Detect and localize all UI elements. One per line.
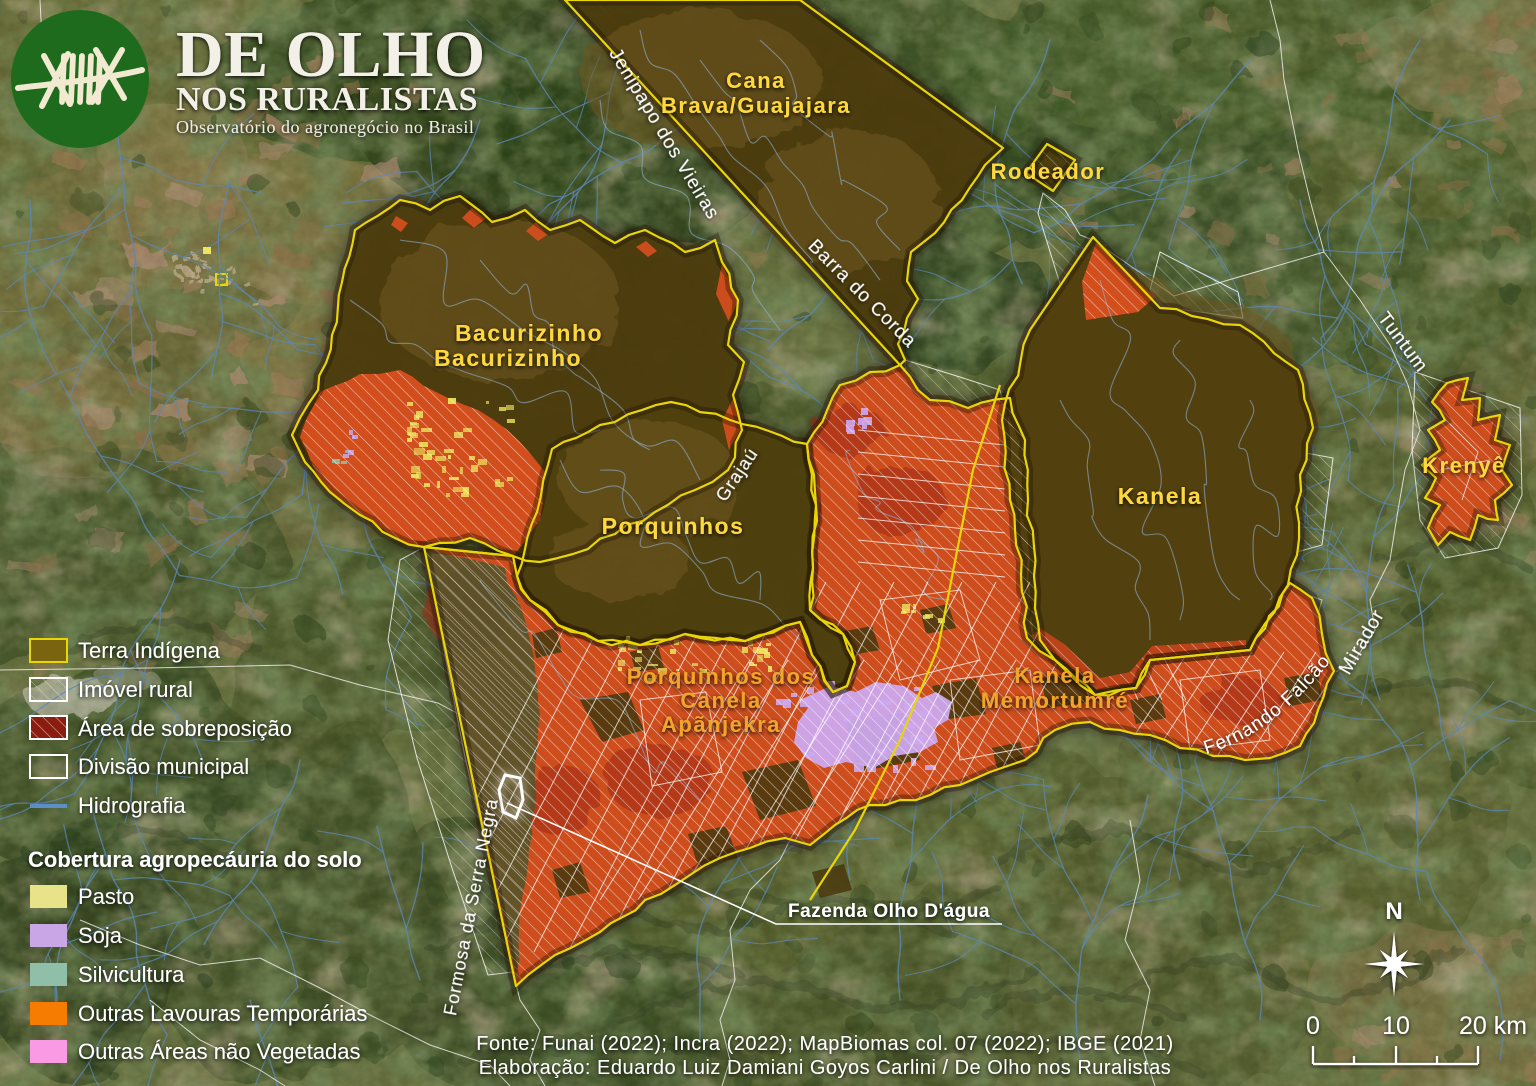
svg-text:Soja: Soja <box>78 923 123 948</box>
svg-text:Bacurizinho: Bacurizinho <box>434 345 582 371</box>
svg-text:Fazenda Olho D'água: Fazenda Olho D'água <box>788 901 990 922</box>
svg-text:Elaboração: Eduardo Luiz Damia: Elaboração: Eduardo Luiz Damiani Goyos C… <box>479 1057 1171 1079</box>
svg-text:Apãnjekra: Apãnjekra <box>661 712 781 737</box>
svg-text:Outras Lavouras Temporárias: Outras Lavouras Temporárias <box>78 1001 367 1026</box>
svg-text:Porquinhos dos: Porquinhos dos <box>627 664 815 689</box>
svg-text:Outras Áreas não Vegetadas: Outras Áreas não Vegetadas <box>78 1039 361 1064</box>
svg-text:Área de sobreposição: Área de sobreposição <box>78 716 292 741</box>
svg-text:Pasto: Pasto <box>78 884 134 909</box>
svg-text:Hidrografia: Hidrografia <box>78 793 186 818</box>
svg-text:Fonte: Funai (2022); Incra (20: Fonte: Funai (2022); Incra (2022); MapBi… <box>476 1033 1173 1055</box>
svg-text:10: 10 <box>1382 1012 1410 1040</box>
svg-text:Silvicultura: Silvicultura <box>78 962 185 987</box>
svg-text:Rodeador: Rodeador <box>991 159 1106 184</box>
svg-text:N: N <box>1385 898 1402 925</box>
svg-text:0: 0 <box>1306 1012 1320 1040</box>
svg-text:Terra Indígena: Terra Indígena <box>78 638 221 663</box>
svg-text:Kanela: Kanela <box>1014 663 1095 688</box>
svg-text:Canela: Canela <box>680 688 761 713</box>
svg-text:Observatório do agronegócio no: Observatório do agronegócio no Brasil <box>176 117 474 137</box>
svg-text:Bacurizinho: Bacurizinho <box>455 320 603 346</box>
svg-text:Divisão municipal: Divisão municipal <box>78 754 249 779</box>
svg-text:Porquinhos: Porquinhos <box>602 513 745 539</box>
svg-text:Imóvel rural: Imóvel rural <box>78 677 193 702</box>
svg-text:Krenyê: Krenyê <box>1422 453 1506 478</box>
svg-text:Memortumré: Memortumré <box>981 688 1129 713</box>
svg-text:NOS RURALISTAS: NOS RURALISTAS <box>176 81 478 118</box>
svg-text:Kanela: Kanela <box>1118 483 1202 509</box>
svg-text:20 km: 20 km <box>1459 1012 1527 1040</box>
svg-text:Cana: Cana <box>726 68 786 93</box>
svg-text:Brava/Guajajara: Brava/Guajajara <box>661 93 851 118</box>
svg-text:Cobertura agropecáuria do solo: Cobertura agropecáuria do solo <box>28 847 362 872</box>
